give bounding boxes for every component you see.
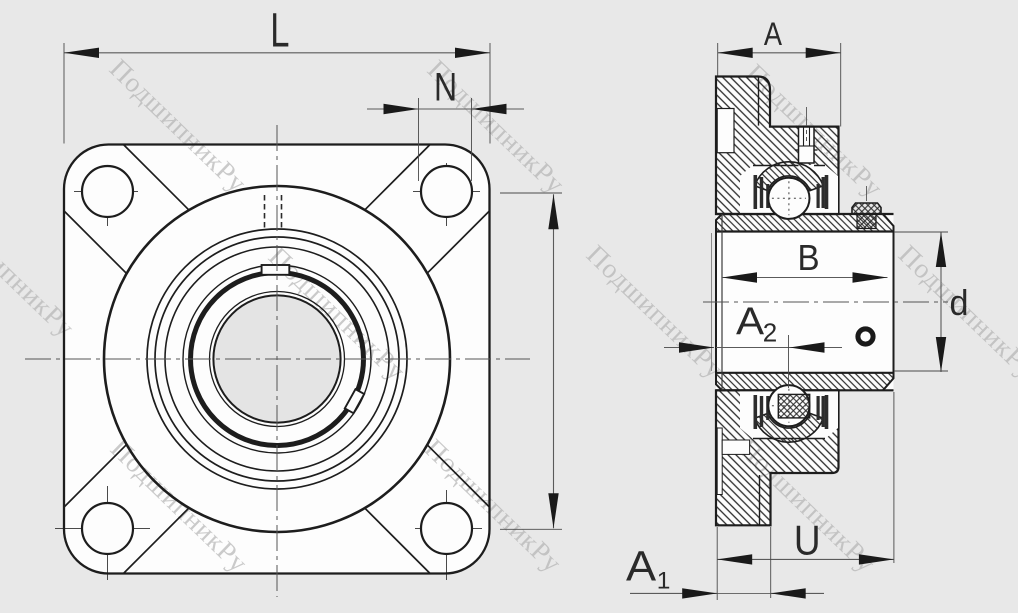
- svg-text:d: d: [949, 283, 968, 323]
- svg-text:A: A: [736, 299, 764, 343]
- svg-text:N: N: [434, 64, 457, 109]
- svg-text:A: A: [764, 17, 782, 53]
- svg-text:U: U: [794, 517, 821, 564]
- svg-text:L: L: [270, 3, 289, 57]
- svg-text:2: 2: [763, 318, 777, 348]
- svg-text:1: 1: [657, 568, 671, 595]
- svg-text:A: A: [626, 542, 657, 590]
- svg-text:B: B: [797, 239, 819, 279]
